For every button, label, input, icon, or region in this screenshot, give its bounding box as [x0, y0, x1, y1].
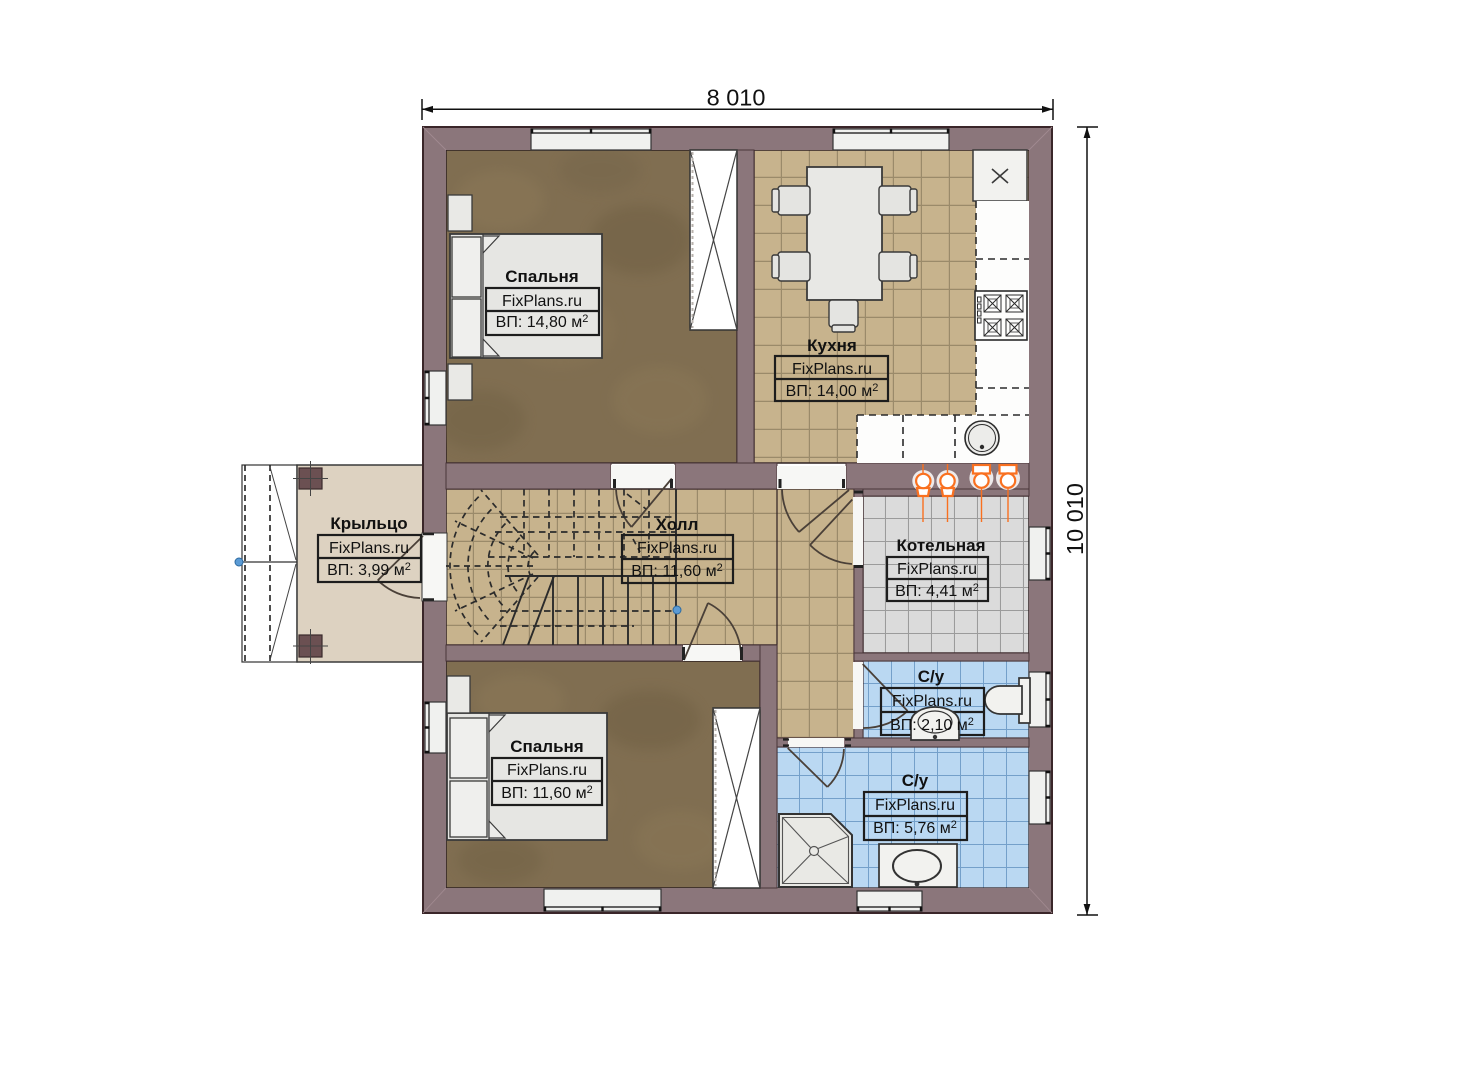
svg-text:С/у: С/у	[902, 771, 929, 790]
svg-text:FixPlans.ru: FixPlans.ru	[875, 797, 955, 814]
svg-text:ВП: 14,80 м2: ВП: 14,80 м2	[496, 313, 589, 331]
svg-text:Котельная: Котельная	[896, 536, 985, 555]
svg-text:Спальня: Спальня	[505, 267, 578, 286]
svg-text:FixPlans.ru: FixPlans.ru	[502, 293, 582, 310]
svg-text:ВП: 14,00 м2: ВП: 14,00 м2	[786, 382, 879, 400]
svg-text:8 010: 8 010	[707, 85, 766, 111]
svg-text:FixPlans.ru: FixPlans.ru	[637, 540, 717, 557]
svg-text:ВП: 11,60 м2: ВП: 11,60 м2	[501, 784, 592, 802]
svg-text:FixPlans.ru: FixPlans.ru	[507, 762, 587, 779]
svg-text:10 010: 10 010	[1062, 483, 1088, 555]
svg-text:ВП: 2,10 м2: ВП: 2,10 м2	[890, 716, 974, 734]
svg-text:Холл: Холл	[656, 515, 699, 534]
svg-text:FixPlans.ru: FixPlans.ru	[897, 561, 977, 578]
svg-text:Крыльцо: Крыльцо	[330, 514, 407, 533]
svg-text:Спальня: Спальня	[510, 737, 583, 756]
svg-text:С/у: С/у	[918, 667, 945, 686]
svg-text:FixPlans.ru: FixPlans.ru	[792, 361, 872, 378]
svg-text:ВП: 4,41 м2: ВП: 4,41 м2	[895, 582, 979, 600]
svg-text:Кухня: Кухня	[807, 336, 857, 355]
svg-text:FixPlans.ru: FixPlans.ru	[329, 540, 409, 557]
svg-text:ВП: 3,99 м2: ВП: 3,99 м2	[327, 561, 411, 579]
svg-text:ВП: 5,76 м2: ВП: 5,76 м2	[873, 819, 957, 837]
svg-text:ВП: 11,60 м2: ВП: 11,60 м2	[631, 562, 722, 580]
